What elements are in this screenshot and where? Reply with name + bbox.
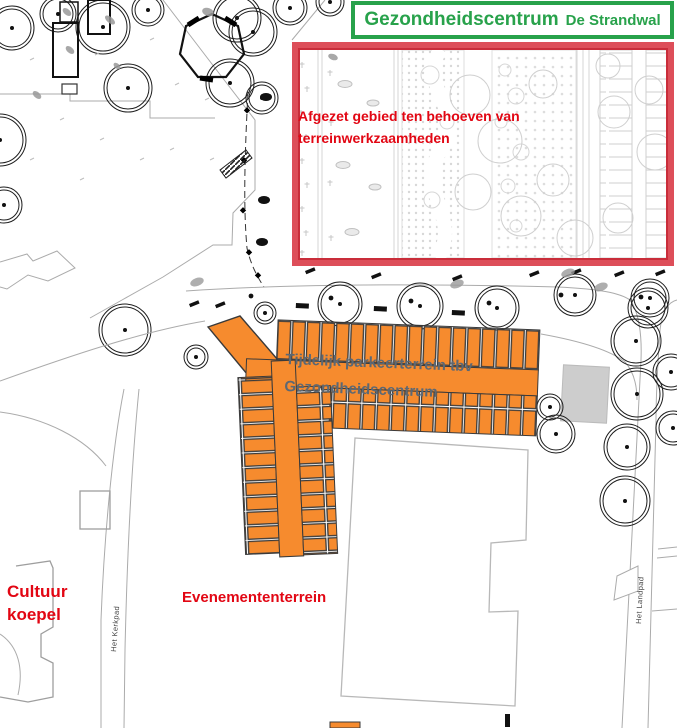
road-label-east: Het Landpad bbox=[634, 576, 645, 624]
event-terrain-label: Evenemententerrein bbox=[182, 589, 326, 606]
parking-label-line1: Tijdelijk parkeerterrein tbv bbox=[285, 351, 473, 375]
cultuur-koepel-label: Cultuurkoepel bbox=[7, 580, 67, 626]
bottom-mark bbox=[505, 714, 510, 727]
cultuur-label-line1: Cultuur bbox=[7, 582, 67, 601]
shed-rect bbox=[561, 365, 610, 423]
page-title: Gezondheidscentrum bbox=[364, 9, 558, 31]
title-box: Gezondheidscentrum De Strandwal bbox=[351, 1, 674, 39]
road-markings bbox=[189, 267, 666, 316]
page-subtitle: De Strandwal bbox=[566, 12, 661, 29]
parking-label-line2: Gezondheidscentrum bbox=[284, 378, 438, 401]
parking-label: Tijdelijk parkeerterrein tbvGezondheidsc… bbox=[284, 346, 473, 407]
road-label-west: Het Kerkpad bbox=[109, 606, 121, 653]
restricted-area-box bbox=[292, 42, 674, 266]
restricted-area-label-line2: terreinwerkzaamheden bbox=[298, 130, 450, 146]
restricted-area-label: Afgezet gebied ten behoeven vanterreinwe… bbox=[298, 105, 520, 149]
cultuur-label-line2: koepel bbox=[7, 605, 61, 624]
restricted-area-label-line1: Afgezet gebied ten behoeven van bbox=[298, 108, 520, 124]
site-plan-canvas: Het Kerkpad Het Landpad Gezondheidscentr… bbox=[0, 0, 677, 728]
